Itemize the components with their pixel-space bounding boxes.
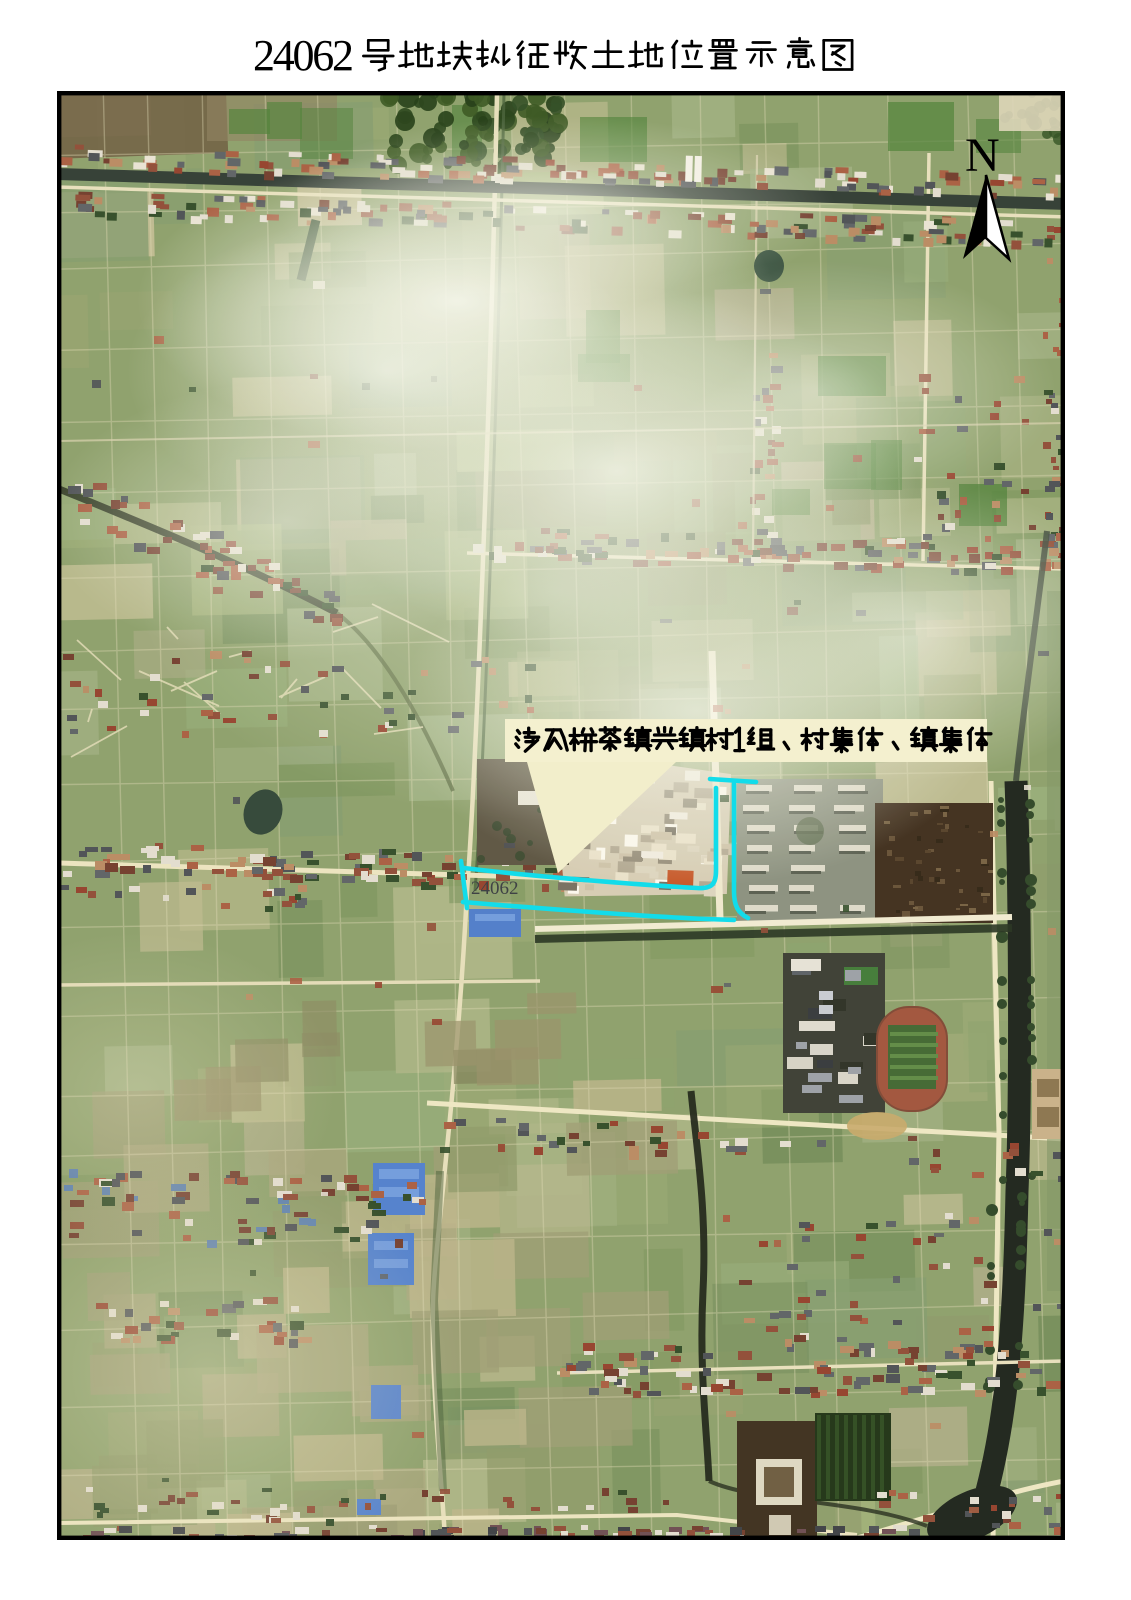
svg-text:N: N [965, 129, 1000, 182]
svg-text:24062: 24062 [253, 31, 354, 80]
svg-text:24062: 24062 [471, 878, 519, 899]
